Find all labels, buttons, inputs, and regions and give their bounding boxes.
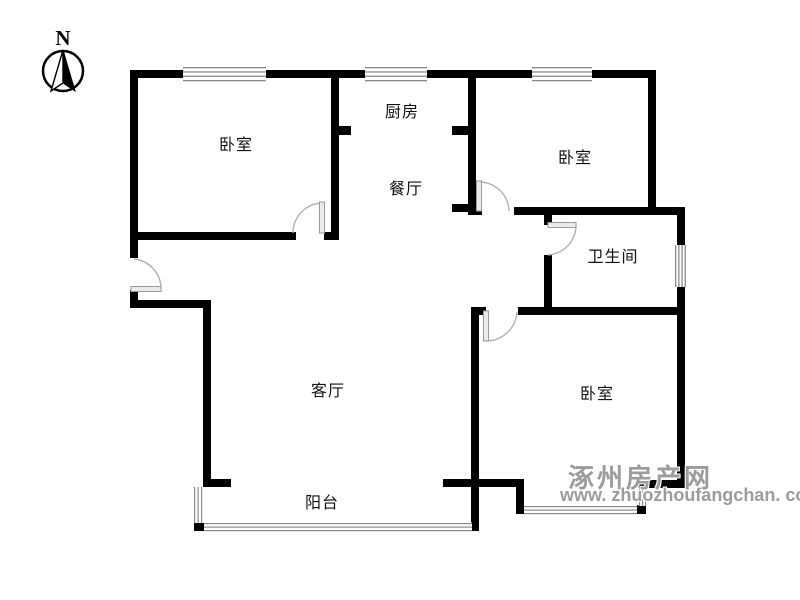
wall-segment <box>471 307 479 531</box>
door-leaf <box>477 181 482 211</box>
wall-segment <box>130 70 138 258</box>
window-balcony-left <box>194 487 203 523</box>
walls <box>130 70 685 531</box>
door-leaf <box>484 311 489 341</box>
wall-segment <box>203 300 211 487</box>
window-bedroom-top-right <box>532 67 592 81</box>
floor-plan-page: N 卧室厨房餐厅卧室卫生间卧室客厅阳台 涿州房产网 www. zhuozhouf… <box>0 0 800 600</box>
room-label-bedroom-top-left: 卧室 <box>219 131 253 155</box>
window-kitchen <box>365 67 427 81</box>
wall-segment <box>339 126 351 135</box>
wall-segment <box>637 505 646 514</box>
wall-segment <box>516 479 524 514</box>
compass-north-label: N <box>55 26 70 50</box>
door-swing-arc <box>548 225 576 255</box>
wall-segment <box>677 207 685 245</box>
door-bathroom <box>548 223 576 256</box>
compass: N <box>43 26 83 91</box>
window-bathroom <box>675 245 686 287</box>
compass-needle-left <box>51 50 63 91</box>
wall-segment <box>203 479 231 487</box>
door-swing-arc <box>486 312 517 341</box>
door-leaf <box>548 223 576 228</box>
window-balcony-bottom <box>204 523 472 532</box>
wall-segment <box>518 307 684 315</box>
room-label-balcony: 阳台 <box>305 489 339 513</box>
wall-segment <box>452 126 468 135</box>
door-bedroom-top-left <box>293 202 325 233</box>
room-label-living-room: 客厅 <box>311 377 345 401</box>
wall-segment <box>514 207 684 215</box>
wall-segment <box>130 300 211 308</box>
door-leaf <box>320 202 325 233</box>
wall-segment <box>194 523 204 531</box>
room-label-bedroom-top-right: 卧室 <box>558 144 592 168</box>
door-swing-arc <box>293 203 322 233</box>
room-label-bathroom: 卫生间 <box>587 243 638 267</box>
wall-segment <box>544 255 552 307</box>
room-label-dining-room: 餐厅 <box>389 175 423 199</box>
door-bedroom-top-right <box>477 181 510 211</box>
compass-needle-right <box>63 50 75 91</box>
floor-plan-drawing: N <box>0 0 800 600</box>
window-bay-bottom <box>524 506 637 515</box>
wall-segment <box>638 480 685 488</box>
room-label-kitchen: 厨房 <box>385 98 419 122</box>
wall-segment <box>452 204 468 212</box>
door-bedroom-bottom-right <box>484 311 518 341</box>
wall-segment <box>648 70 656 215</box>
window-bedroom-top-left <box>183 67 266 81</box>
door-swing-arc <box>134 259 161 289</box>
door-swing-arc <box>479 182 509 211</box>
window-bay-right <box>639 487 647 506</box>
wall-segment <box>468 70 476 212</box>
wall-segment <box>443 479 524 487</box>
wall-segment <box>130 232 296 240</box>
door-leaf <box>131 287 161 292</box>
room-label-bedroom-bottom-right: 卧室 <box>580 380 614 404</box>
door-entry <box>131 259 161 292</box>
wall-segment <box>677 287 685 487</box>
wall-segment <box>331 70 339 240</box>
